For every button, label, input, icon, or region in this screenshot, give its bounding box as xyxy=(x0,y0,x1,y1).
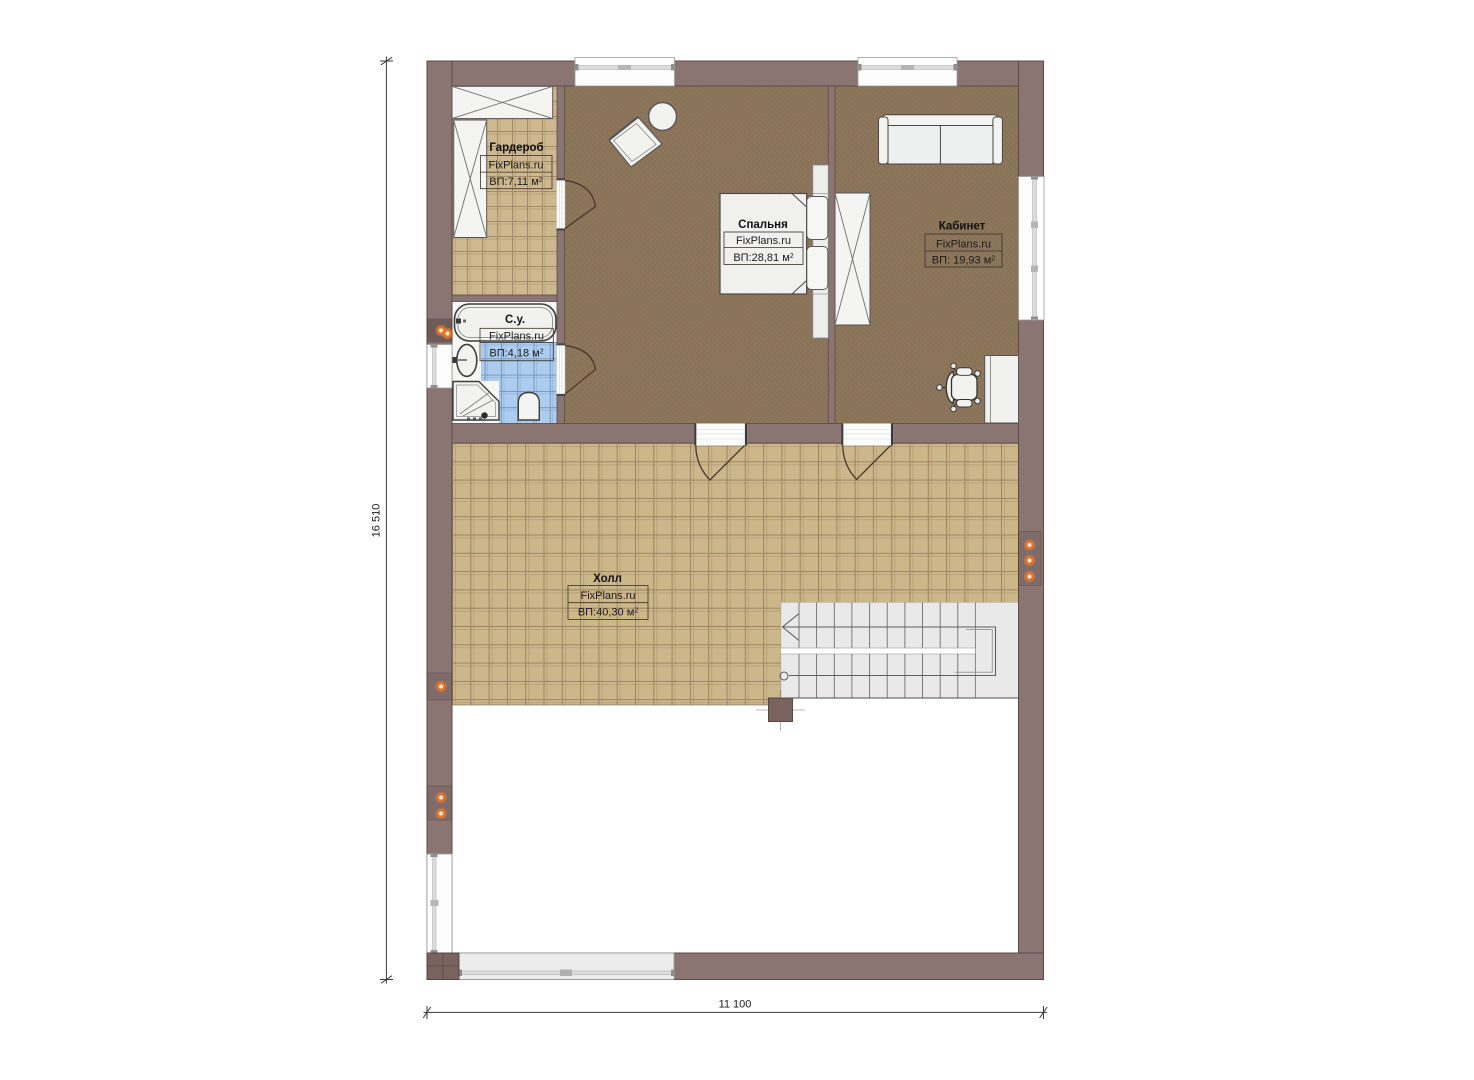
svg-text:ВП:7,11 м2: ВП:7,11 м2 xyxy=(489,176,543,188)
svg-text:FixPlans.ru: FixPlans.ru xyxy=(488,159,543,171)
svg-text:ВП:28,81 м2: ВП:28,81 м2 xyxy=(733,252,793,264)
svg-text:16 510: 16 510 xyxy=(371,504,383,538)
svg-text:Холл: Холл xyxy=(593,573,622,585)
svg-text:ВП: 19,93 м2: ВП: 19,93 м2 xyxy=(932,255,996,267)
svg-text:Спальня: Спальня xyxy=(738,219,788,231)
svg-text:FixPlans.ru: FixPlans.ru xyxy=(489,330,544,342)
svg-text:11 100: 11 100 xyxy=(719,999,752,1011)
svg-text:С.у.: С.у. xyxy=(505,314,525,326)
svg-text:ВП:4,18 м2: ВП:4,18 м2 xyxy=(489,348,543,360)
svg-text:FixPlans.ru: FixPlans.ru xyxy=(580,590,635,602)
svg-text:Кабинет: Кабинет xyxy=(939,221,986,233)
svg-text:FixPlans.ru: FixPlans.ru xyxy=(736,235,791,247)
svg-text:Гардероб: Гардероб xyxy=(489,142,543,154)
svg-text:ВП:40,30 м2: ВП:40,30 м2 xyxy=(578,607,638,619)
svg-text:FixPlans.ru: FixPlans.ru xyxy=(936,238,991,250)
